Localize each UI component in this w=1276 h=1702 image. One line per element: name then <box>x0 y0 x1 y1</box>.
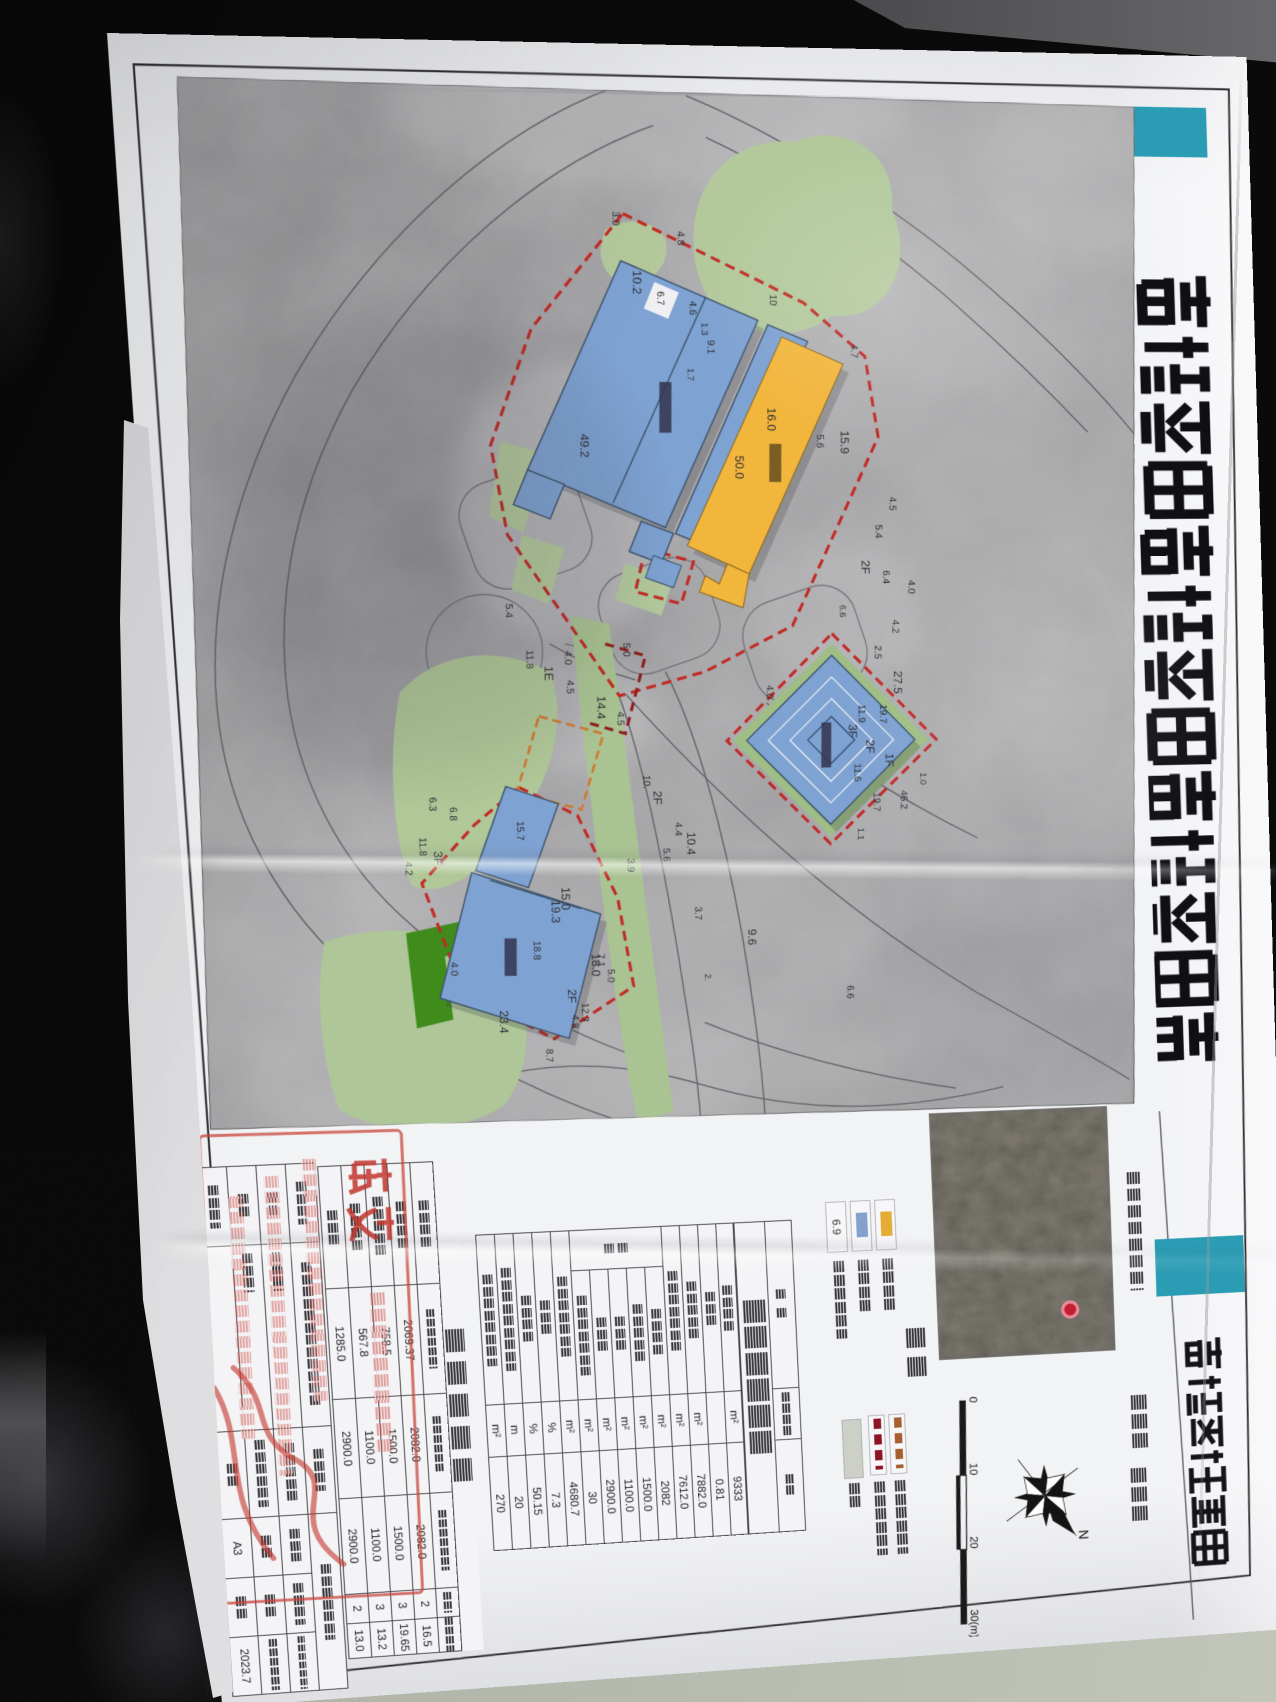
svg-text:1E: 1E <box>542 666 556 681</box>
svg-text:11.6: 11.6 <box>852 763 863 781</box>
svg-text:1.1: 1.1 <box>855 828 865 840</box>
svg-text:2F: 2F <box>651 791 665 805</box>
svg-text:5.6: 5.6 <box>814 434 825 448</box>
svg-text:5.6: 5.6 <box>661 848 672 862</box>
svg-text:4.0: 4.0 <box>448 962 459 976</box>
svg-text:4.5: 4.5 <box>615 712 626 726</box>
svg-text:2F: 2F <box>859 560 873 574</box>
svg-text:4.7: 4.7 <box>848 344 859 358</box>
svg-text:50.0: 50.0 <box>733 456 747 480</box>
svg-text:5.4: 5.4 <box>503 604 514 618</box>
svg-text:18.0: 18.0 <box>589 953 603 976</box>
svg-text:18.8: 18.8 <box>531 941 542 960</box>
svg-text:10: 10 <box>967 1463 980 1476</box>
svg-text:N: N <box>1075 1529 1090 1540</box>
svg-text:46.2: 46.2 <box>898 790 909 809</box>
svg-text:3.0: 3.0 <box>610 211 621 226</box>
svg-text:6.8: 6.8 <box>447 807 458 821</box>
svg-text:27.5: 27.5 <box>891 671 905 694</box>
svg-text:10.: 10. <box>641 775 652 789</box>
svg-text:4.5: 4.5 <box>564 680 575 694</box>
svg-text:5.0: 5.0 <box>605 969 616 983</box>
svg-text:6.6: 6.6 <box>837 605 847 617</box>
svg-text:1F: 1F <box>883 753 897 767</box>
svg-text:4.8: 4.8 <box>675 231 686 245</box>
svg-text:20: 20 <box>968 1536 981 1549</box>
svg-text:19.7: 19.7 <box>871 792 882 811</box>
svg-text:4.8: 4.8 <box>569 1015 580 1029</box>
svg-text:6.6: 6.6 <box>845 985 856 999</box>
svg-text:3.7: 3.7 <box>692 906 703 920</box>
svg-text:2.5: 2.5 <box>872 645 883 659</box>
svg-text:6.3: 6.3 <box>427 797 438 811</box>
svg-text:2F: 2F <box>565 989 579 1003</box>
svg-text:19.7: 19.7 <box>877 704 888 723</box>
svg-text:3F: 3F <box>431 851 445 865</box>
svg-text:5.4: 5.4 <box>873 525 884 539</box>
svg-text:10.2: 10.2 <box>630 270 644 294</box>
svg-text:4.5: 4.5 <box>887 497 898 511</box>
svg-text:0: 0 <box>967 1397 980 1403</box>
svg-text:1.3: 1.3 <box>699 323 709 336</box>
svg-text:4.0: 4.0 <box>764 685 775 699</box>
svg-text:16.0: 16.0 <box>765 408 779 432</box>
svg-text:8.7: 8.7 <box>543 1049 554 1063</box>
svg-text:49.2: 49.2 <box>578 434 592 458</box>
svg-text:6.4: 6.4 <box>880 570 891 584</box>
svg-text:4.4: 4.4 <box>673 822 684 836</box>
svg-text:9.1: 9.1 <box>705 340 716 354</box>
svg-text:5.0: 5.0 <box>621 643 632 657</box>
svg-text:4.2: 4.2 <box>890 620 901 634</box>
svg-text:4.2: 4.2 <box>403 862 414 876</box>
svg-text:4.0: 4.0 <box>562 651 573 665</box>
svg-text:14.4: 14.4 <box>594 696 608 719</box>
svg-text:3.9: 3.9 <box>625 858 636 872</box>
svg-text:10: 10 <box>767 294 778 305</box>
svg-text:9.6: 9.6 <box>745 929 759 946</box>
svg-text:2F: 2F <box>864 740 878 754</box>
svg-text:4.0: 4.0 <box>906 580 917 594</box>
svg-text:11.8: 11.8 <box>417 837 428 856</box>
svg-text:11.8: 11.8 <box>524 650 535 669</box>
svg-text:15.7: 15.7 <box>514 821 525 840</box>
svg-text:15.0: 15.0 <box>559 887 573 910</box>
svg-text:3F: 3F <box>846 724 860 738</box>
svg-text:15.9: 15.9 <box>838 430 852 454</box>
svg-text:30(m): 30(m) <box>968 1609 981 1638</box>
svg-text:10.4: 10.4 <box>685 832 699 855</box>
svg-text:6.7: 6.7 <box>654 291 665 305</box>
svg-text:2.: 2. <box>702 974 712 982</box>
svg-text:23.4: 23.4 <box>497 1010 511 1033</box>
svg-text:11.9: 11.9 <box>856 704 867 722</box>
svg-text:4.6: 4.6 <box>687 301 698 315</box>
svg-text:1.7: 1.7 <box>685 368 695 381</box>
svg-text:1.0: 1.0 <box>918 772 928 785</box>
